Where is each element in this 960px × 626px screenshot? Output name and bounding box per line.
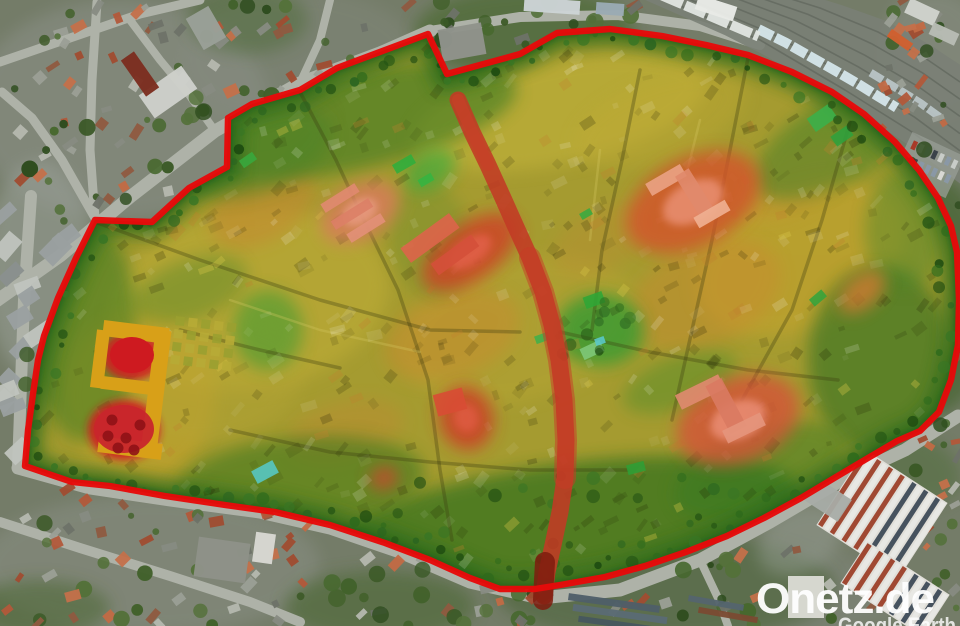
- tree: [587, 471, 601, 485]
- rim-tree: [799, 476, 805, 482]
- garden-parcel: [183, 356, 193, 366]
- garden-parcel: [210, 347, 220, 357]
- garden-tree: [129, 445, 140, 456]
- tree: [60, 217, 68, 225]
- rim-tree: [88, 254, 95, 261]
- tree: [413, 586, 430, 603]
- tree: [615, 303, 624, 312]
- red-street-outside: [543, 562, 545, 600]
- rim-tree: [456, 553, 464, 561]
- garden-parcel: [188, 318, 198, 328]
- rim-tree: [384, 55, 395, 66]
- tree: [708, 562, 714, 568]
- tree: [909, 464, 923, 478]
- garden-tree: [107, 415, 118, 426]
- rim-tree: [168, 215, 180, 227]
- rim-tree: [922, 217, 934, 229]
- tree: [45, 177, 53, 185]
- rim-tree: [910, 190, 917, 197]
- rim-tree: [577, 33, 590, 46]
- rim-tree: [350, 517, 360, 527]
- tree: [79, 119, 96, 136]
- tree: [372, 606, 389, 623]
- tree: [324, 574, 341, 591]
- tree: [438, 526, 450, 538]
- landmark-building: [252, 532, 276, 564]
- rim-tree: [357, 72, 368, 83]
- tree: [940, 569, 951, 580]
- tree: [415, 562, 431, 578]
- rim-tree: [893, 428, 900, 435]
- rim-tree: [893, 155, 904, 166]
- rim-tree: [228, 176, 234, 182]
- tree: [65, 9, 75, 19]
- rim-tree: [237, 128, 245, 136]
- rim-tree: [50, 368, 61, 379]
- rim-tree: [594, 562, 601, 569]
- tree: [36, 515, 52, 531]
- rim-tree: [857, 135, 866, 144]
- aerial-heatmap-svg: Onetz.de Google Earth: [0, 0, 960, 626]
- rim-tree: [413, 538, 419, 544]
- tree: [566, 541, 574, 549]
- garden-parcel: [222, 361, 232, 371]
- tree: [599, 306, 610, 317]
- rim-tree: [189, 196, 199, 206]
- rim-tree: [875, 432, 887, 444]
- satellite-map: Onetz.de Google Earth: [0, 0, 960, 626]
- rim-tree: [115, 479, 121, 485]
- rim-tree: [258, 107, 267, 116]
- tree: [686, 520, 693, 527]
- rim-tree: [51, 463, 58, 470]
- tree: [940, 102, 946, 108]
- rim-tree: [936, 349, 943, 356]
- tree: [19, 347, 34, 362]
- tree: [152, 528, 159, 535]
- tree: [440, 18, 448, 26]
- garden-tree: [121, 433, 132, 444]
- rim-tree: [257, 492, 270, 505]
- garden-parcel: [227, 322, 237, 332]
- tree: [581, 328, 593, 340]
- rim-tree: [58, 329, 68, 339]
- rim-tree: [610, 36, 615, 41]
- tree: [488, 489, 502, 503]
- tree: [279, 0, 292, 13]
- tree: [42, 146, 50, 154]
- rim-tree: [410, 56, 417, 63]
- tree: [393, 508, 403, 518]
- rim-tree: [491, 67, 500, 76]
- tree: [11, 85, 18, 92]
- rim-tree: [468, 76, 479, 87]
- castle-garden: [94, 405, 154, 453]
- rim-tree: [360, 510, 372, 522]
- rim-tree: [781, 82, 787, 88]
- tree: [595, 348, 603, 356]
- tree: [675, 562, 692, 579]
- tree: [708, 483, 720, 495]
- tree: [341, 578, 357, 594]
- tree: [728, 488, 740, 500]
- tree: [637, 540, 645, 548]
- rim-tree: [234, 144, 244, 154]
- tree: [586, 490, 600, 504]
- tree: [618, 540, 626, 548]
- rim-tree: [907, 416, 918, 427]
- garden-parcel: [196, 358, 206, 368]
- rim-tree: [204, 487, 211, 494]
- garden-tree: [135, 420, 146, 431]
- rim-tree: [762, 493, 771, 502]
- garden-parcel: [185, 343, 195, 353]
- tree: [953, 605, 960, 612]
- tree: [377, 527, 386, 536]
- landmark-building: [596, 2, 625, 16]
- rim-tree: [932, 377, 939, 384]
- garden-parcel: [212, 334, 222, 344]
- garden-parcel: [223, 348, 233, 358]
- garden-parcel: [199, 332, 209, 342]
- rim-tree: [759, 74, 770, 85]
- rim-tree: [606, 555, 612, 561]
- garden-tree: [103, 431, 114, 442]
- tree: [495, 558, 501, 564]
- tree: [530, 549, 536, 555]
- rim-tree: [932, 265, 944, 277]
- rim-tree: [284, 502, 295, 513]
- tree: [569, 19, 579, 29]
- tree: [947, 519, 958, 530]
- castle-courtyard: [110, 337, 154, 373]
- rim-tree: [287, 103, 296, 112]
- garden-parcel: [209, 359, 219, 369]
- rim-tree: [459, 78, 464, 83]
- rim-tree: [905, 180, 915, 190]
- tree: [677, 610, 689, 622]
- rim-tree: [667, 548, 673, 554]
- rim-tree: [711, 523, 717, 529]
- tree: [359, 593, 369, 603]
- rim-tree: [172, 485, 179, 492]
- tree: [144, 117, 150, 123]
- tree: [414, 477, 426, 489]
- rim-tree: [67, 312, 74, 319]
- rim-tree: [529, 58, 535, 64]
- rim-tree: [847, 121, 858, 132]
- rim-tree: [665, 46, 677, 58]
- tree: [369, 566, 386, 583]
- garden-parcel: [214, 321, 224, 331]
- garden-parcel: [198, 345, 208, 355]
- tree: [195, 103, 212, 120]
- tree: [935, 533, 947, 545]
- tree: [228, 0, 238, 10]
- rim-tree: [712, 52, 721, 61]
- tree: [518, 483, 528, 493]
- rim-tree: [828, 101, 836, 109]
- tree: [59, 120, 68, 129]
- rim-tree: [59, 342, 64, 347]
- rim-tree: [252, 118, 258, 124]
- rim-tree: [793, 91, 805, 103]
- tree: [594, 317, 603, 326]
- tree: [120, 193, 132, 205]
- garden-parcel: [201, 319, 211, 329]
- rim-tree: [223, 492, 234, 503]
- rim-tree: [436, 545, 445, 554]
- tree: [131, 604, 143, 616]
- tree: [147, 159, 163, 175]
- rim-tree: [938, 361, 951, 374]
- tree: [50, 127, 59, 136]
- tree: [479, 604, 493, 618]
- tree: [42, 538, 52, 548]
- rim-tree: [269, 500, 278, 509]
- rim-tree: [506, 565, 512, 571]
- rim-tree: [933, 281, 945, 293]
- rim-tree: [83, 474, 89, 480]
- tree: [181, 113, 193, 125]
- tree: [677, 473, 686, 482]
- watermark-attribution: Google Earth: [838, 613, 956, 626]
- rim-tree: [231, 158, 238, 165]
- tree: [916, 141, 932, 157]
- rim-tree: [69, 466, 78, 475]
- rim-tree: [628, 35, 639, 46]
- rim-tree: [948, 302, 955, 309]
- rim-tree: [243, 493, 255, 505]
- tree: [297, 592, 305, 600]
- tree: [633, 493, 643, 503]
- tree: [725, 562, 741, 578]
- rim-tree: [814, 474, 822, 482]
- tree: [152, 118, 166, 132]
- tree: [321, 38, 329, 46]
- landmark-building: [193, 537, 250, 584]
- tree: [600, 297, 610, 307]
- tree: [55, 204, 66, 215]
- rim-tree: [326, 84, 336, 94]
- rim-tree: [300, 101, 311, 112]
- rim-tree: [833, 115, 842, 124]
- tree: [695, 513, 702, 520]
- rim-tree: [563, 40, 569, 46]
- rim-tree: [681, 49, 694, 62]
- rim-tree: [98, 234, 108, 244]
- tree: [54, 33, 60, 39]
- rim-tree: [518, 570, 529, 581]
- watermark: Onetz.de Google Earth: [756, 575, 956, 626]
- tree: [920, 44, 934, 58]
- garden-parcel: [225, 335, 235, 345]
- tree: [193, 604, 207, 618]
- garden-tree: [113, 443, 124, 454]
- tree: [128, 513, 134, 519]
- garden-parcel: [175, 316, 185, 326]
- rim-tree: [563, 565, 574, 576]
- tree: [501, 18, 508, 25]
- rim-tree: [883, 147, 893, 157]
- tree: [262, 5, 271, 14]
- rim-tree: [645, 39, 657, 51]
- tree: [162, 161, 174, 173]
- garden-parcel: [172, 342, 182, 352]
- rim-tree: [34, 404, 40, 410]
- tree: [137, 565, 153, 581]
- tree: [98, 557, 110, 569]
- rim-tree: [34, 452, 43, 461]
- garden-parcel: [170, 355, 180, 365]
- tree: [39, 35, 50, 46]
- rim-tree: [32, 420, 42, 430]
- tree: [940, 441, 947, 448]
- garden-parcel: [186, 330, 196, 340]
- tree: [482, 23, 495, 36]
- rim-tree: [328, 507, 336, 515]
- rim-tree: [745, 65, 751, 71]
- rim-tree: [189, 485, 200, 496]
- rim-tree: [315, 86, 322, 93]
- rim-tree: [736, 510, 743, 517]
- rim-tree: [855, 443, 862, 450]
- rim-tree: [444, 77, 452, 85]
- rim-tree: [924, 396, 933, 405]
- tree: [239, 85, 250, 96]
- rim-tree: [176, 209, 183, 216]
- tree: [624, 312, 636, 324]
- rim-tree: [424, 532, 432, 540]
- garden-parcel: [173, 329, 183, 339]
